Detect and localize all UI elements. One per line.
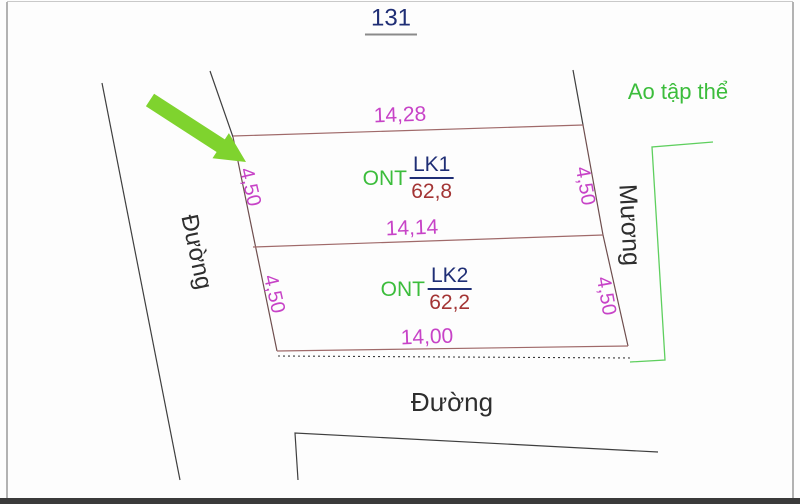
parcel-label-lk1: ONT LK1 62,8 <box>363 154 454 202</box>
frame-border-bottom <box>0 498 800 504</box>
dimension-bottom-width: 14,00 <box>400 326 453 349</box>
road-left-outer-edge <box>102 83 180 480</box>
setback-dotted-line <box>278 356 632 358</box>
road-left-inner-edge <box>210 71 233 137</box>
pond-label: Ao tập thể <box>628 81 728 103</box>
road-bottom-edge <box>295 433 658 480</box>
survey-lines-layer <box>0 0 800 504</box>
highlight-arrow <box>146 94 246 162</box>
parcel-lk1-landuse: ONT <box>363 168 407 189</box>
parcel-lk1-area: 62,8 <box>411 179 452 202</box>
cadastral-drawing: 131 Ao tập thể 14,28 14,14 14,00 4,50 4,… <box>0 0 800 504</box>
parcel-lk2-code: LK2 <box>428 265 471 290</box>
sheet-number: 131 <box>365 7 417 36</box>
parcel-lk2-landuse: ONT <box>381 279 425 300</box>
parcel-lk1-code-area: LK1 62,8 <box>410 154 453 202</box>
road-bottom-label: Đường <box>411 389 493 415</box>
parcel-boundary-top <box>233 125 583 136</box>
parcel-label-lk2: ONT LK2 62,2 <box>381 265 472 313</box>
canal-label: Mương <box>614 184 643 267</box>
parcel-lk2-area: 62,2 <box>429 290 470 313</box>
canal-edge-line <box>573 70 583 125</box>
dimension-top-width: 14,28 <box>373 104 426 127</box>
parcel-lk2-code-area: LK2 62,2 <box>428 265 471 313</box>
dimension-middle-width: 14,14 <box>385 217 438 240</box>
parcel-lk1-code: LK1 <box>410 154 453 179</box>
